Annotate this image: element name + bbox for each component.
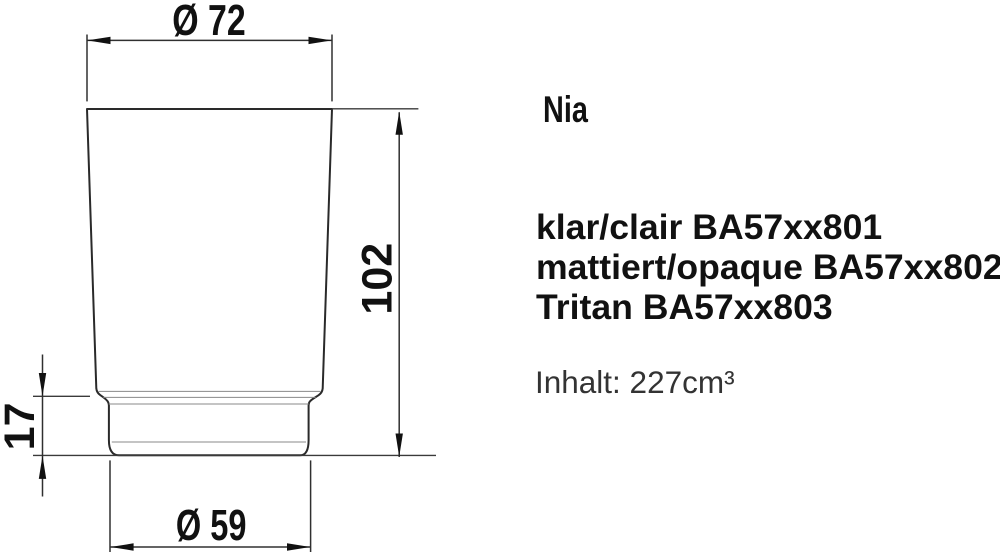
svg-text:Ø 72: Ø 72 <box>172 0 245 45</box>
svg-text:Ø 59: Ø 59 <box>176 501 247 550</box>
svg-text:17: 17 <box>0 402 44 450</box>
svg-text:102: 102 <box>354 243 402 315</box>
